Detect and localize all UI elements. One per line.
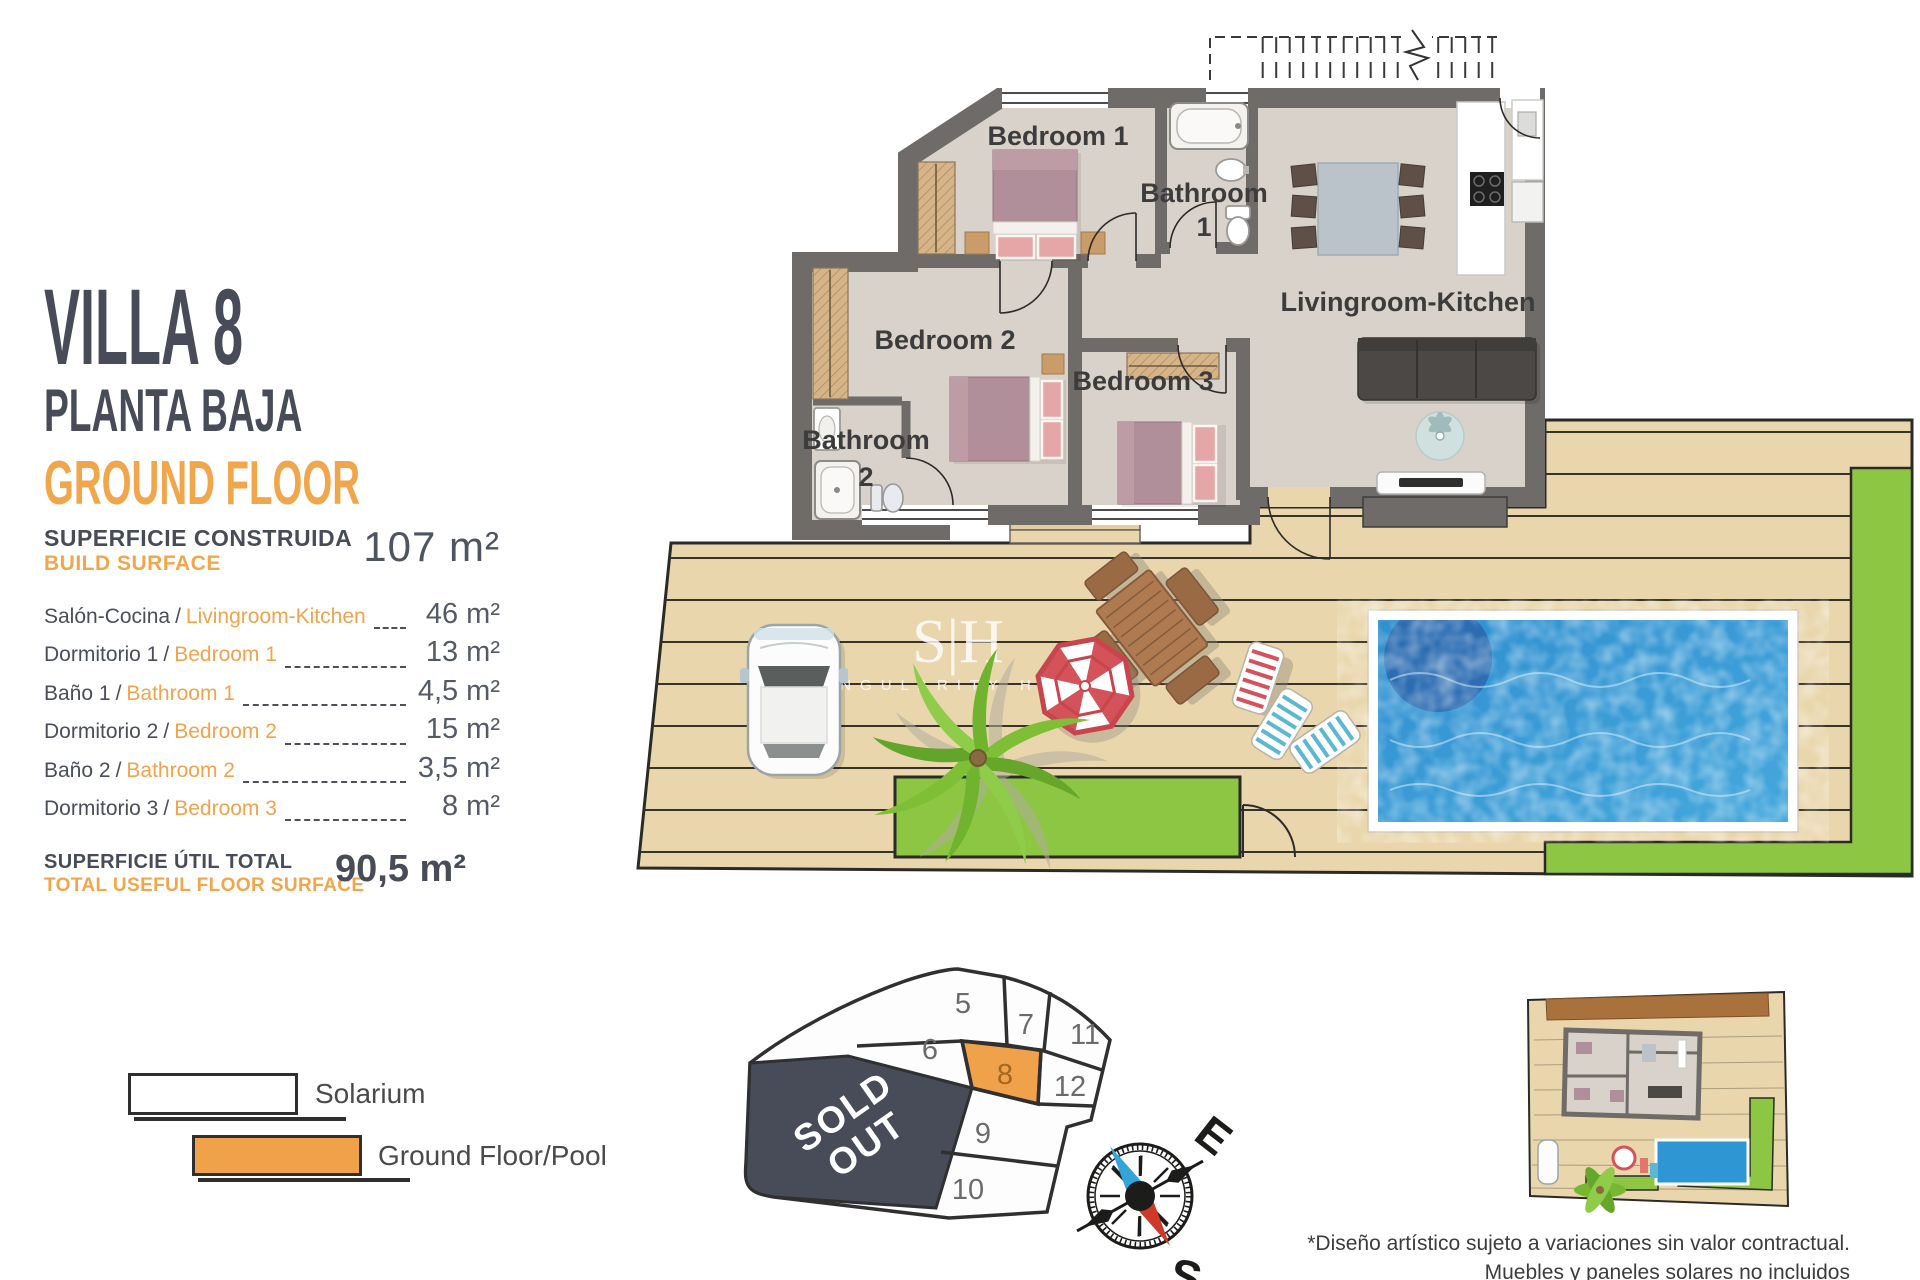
toilet-icon-bathroom2 [871, 484, 903, 512]
room-name-es: Dormitorio 1 [44, 643, 158, 667]
dotted-leader [243, 704, 406, 706]
house: Bedroom 1 Bathroom 1 Bedroom 2 Bedroom 3… [802, 88, 1543, 559]
legend-swatch-solarium [128, 1073, 298, 1115]
room-name-es: Dormitorio 2 [44, 720, 158, 744]
area-row-bathroom2: Baño 2/Bathroom 2 3,5 m² [44, 752, 500, 790]
area-row-bedroom2: Dormitorio 2/Bedroom 2 15 m² [44, 713, 500, 751]
legend: Solarium Ground Floor/Pool [128, 1071, 648, 1211]
build-surface-value: 107 m² [363, 523, 500, 571]
plot-12: 12 [1054, 1071, 1086, 1103]
compass-east-label: E [1186, 1105, 1242, 1165]
area-row-living: Salón-Cocina/Livingroom-Kitchen 46 m² [44, 598, 500, 636]
label-bedroom1: Bedroom 1 [987, 121, 1128, 151]
wardrobe-bedroom1 [918, 162, 955, 254]
legend-label-groundfloor: Ground Floor/Pool [378, 1140, 607, 1172]
villa-overview-thumbnail [1528, 992, 1788, 1217]
bathtub-icon [1170, 103, 1248, 149]
legend-swatch-shadow [198, 1178, 410, 1182]
dining-table [1291, 163, 1425, 255]
plot-9: 9 [975, 1118, 991, 1150]
legend-swatch-shadow [134, 1117, 346, 1121]
room-area-value: 15 m² [412, 713, 500, 746]
plot-8: 8 [997, 1059, 1013, 1091]
plot-10: 10 [952, 1174, 984, 1206]
shower-icon-bathroom2 [815, 461, 860, 519]
plot-11: 11 [1070, 1019, 1100, 1051]
room-name-es: Baño 2 [44, 759, 111, 783]
dotted-leader [243, 781, 406, 783]
label-living-kitchen: Livingroom-Kitchen [1281, 287, 1536, 317]
subtitle-en: GROUND FLOOR [44, 453, 554, 515]
plot-5: 5 [955, 988, 971, 1020]
separator: / [116, 759, 122, 783]
separator: / [163, 720, 169, 744]
legend-swatch-groundfloor [192, 1135, 362, 1176]
room-name-es: Dormitorio 3 [44, 797, 158, 821]
dotted-leader [285, 743, 406, 745]
room-area-list: Salón-Cocina/Livingroom-Kitchen 46 m² Do… [44, 598, 500, 828]
sofa [1358, 338, 1540, 404]
area-row-bedroom3: Dormitorio 3/Bedroom 3 8 m² [44, 790, 500, 828]
label-bedroom3: Bedroom 3 [1072, 366, 1213, 396]
room-name-es: Salón-Cocina [44, 605, 170, 629]
room-name-en: Bedroom 2 [174, 720, 277, 744]
room-name-en: Bathroom 1 [126, 682, 235, 706]
room-name-en: Bathroom 2 [126, 759, 235, 783]
subtitle-es: PLANTA BAJA [44, 381, 461, 441]
page-title: VILLA 8 [44, 273, 442, 381]
legend-label-solarium: Solarium [315, 1078, 425, 1110]
room-name-en: Livingroom-Kitchen [186, 605, 366, 629]
label-bathroom2-line1: Bathroom [802, 425, 930, 455]
separator: / [116, 682, 122, 706]
room-name-es: Baño 1 [44, 682, 111, 706]
label-bedroom2: Bedroom 2 [874, 325, 1015, 355]
toilet-icon-bathroom1 [1226, 206, 1250, 245]
separator: / [175, 605, 181, 629]
kitchen-island [1457, 102, 1505, 275]
label-bathroom1-line2: 1 [1196, 212, 1211, 242]
label-bathroom1-line1: Bathroom [1140, 178, 1268, 208]
room-area-value: 13 m² [412, 636, 500, 669]
dotted-leader [374, 627, 406, 629]
plot-6: 6 [922, 1034, 938, 1066]
car-icon [740, 625, 848, 779]
area-row-bedroom1: Dormitorio 1/Bedroom 1 13 m² [44, 636, 500, 674]
disclaimer-line1: *Diseño artístico sujeto a variaciones s… [1070, 1230, 1850, 1259]
exterior-stairs [1210, 30, 1500, 81]
ceiling-fan-icon [1416, 412, 1464, 460]
label-bathroom2-line2: 2 [858, 462, 873, 492]
room-area-value: 3,5 m² [412, 752, 500, 785]
room-name-en: Bedroom 1 [174, 643, 277, 667]
separator: / [163, 643, 169, 667]
total-surface-row: SUPERFICIE ÚTIL TOTAL TOTAL USEFUL FLOOR… [44, 850, 500, 899]
disclaimer-line2: Muebles y paneles solares no incluidos [1070, 1259, 1850, 1280]
room-name-en: Bedroom 3 [174, 797, 277, 821]
dotted-leader [285, 819, 406, 821]
pool [1368, 604, 1798, 832]
dotted-leader [285, 666, 406, 668]
kitchen-counter [1512, 100, 1543, 222]
plot-7: 7 [1018, 1009, 1034, 1041]
bed-bedroom3 [1118, 422, 1226, 507]
disclaimer: *Diseño artístico sujeto a variaciones s… [1070, 1230, 1850, 1280]
page: S|H SINGULARITY HOMES [0, 0, 1920, 1280]
total-value: 90,5 m² [335, 848, 466, 891]
separator: / [163, 797, 169, 821]
room-area-value: 46 m² [412, 598, 500, 631]
build-surface-row: SUPERFICIE CONSTRUIDA BUILD SURFACE 107 … [44, 525, 500, 578]
tv-console [1363, 472, 1507, 527]
mini-parasol-icon [1613, 1147, 1635, 1169]
room-area-value: 4,5 m² [412, 675, 500, 708]
wardrobe-bedroom2 [813, 268, 848, 399]
room-area-value: 8 m² [412, 790, 500, 823]
site-plan: 5 7 11 6 8 12 9 10 SOLD OUT [746, 969, 1110, 1218]
area-row-bathroom1: Baño 1/Bathroom 1 4,5 m² [44, 675, 500, 713]
